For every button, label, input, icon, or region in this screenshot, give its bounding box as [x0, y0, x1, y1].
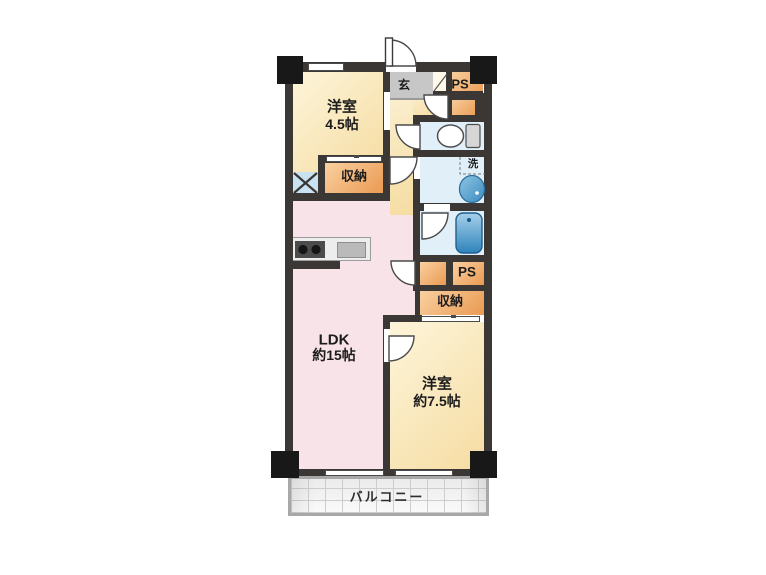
bedroom2-name-label: 洋室 [422, 377, 452, 392]
ldk-name-label: LDK [319, 333, 350, 348]
toilet-bowl-icon [438, 125, 464, 147]
bedroom1-size-label: 4.5帖 [325, 117, 358, 131]
entrance-door-leaf [386, 38, 393, 66]
hall-door-swing-arc [424, 95, 448, 119]
balcony-label: バルコニー [350, 491, 425, 504]
bedroom2-door-swing-arc [389, 336, 414, 361]
washbasin-icon [460, 176, 485, 203]
stove-burner-right [311, 245, 320, 254]
washbasin-faucet-dot [475, 191, 479, 195]
entrance-door-swing-arc [390, 40, 416, 66]
stove-burner-left [298, 245, 307, 254]
storage-lower-label: 収納 [437, 295, 463, 308]
ldk-door-swing-arc [391, 261, 415, 285]
washroom-door-swing-arc [390, 157, 417, 184]
toilet-door-swing-arc [396, 125, 420, 149]
entrance-label: 玄 [398, 79, 410, 91]
bath-door-swing-arc [422, 213, 448, 239]
bathtub-faucet-dot [467, 218, 471, 222]
ps-top-label: PS [451, 78, 468, 91]
ldk-size-label: 約15帖 [312, 348, 356, 362]
laundry-label: 洗 [468, 159, 479, 170]
shaft-cross-icon [294, 173, 317, 193]
bedroom2-size-label: 約7.5帖 [413, 394, 460, 408]
storage-upper-label: 収納 [341, 170, 367, 183]
ps-middle-label: PS [458, 265, 476, 279]
floor-plan: 洋室 4.5帖 玄 PS 収納 洗 PS 収納 LDK 約15帖 洋室 約7.5… [0, 0, 766, 575]
toilet-tank-icon [466, 125, 480, 148]
bedroom1-name-label: 洋室 [327, 100, 357, 115]
shoe-cabinet-diagonal [434, 74, 447, 91]
